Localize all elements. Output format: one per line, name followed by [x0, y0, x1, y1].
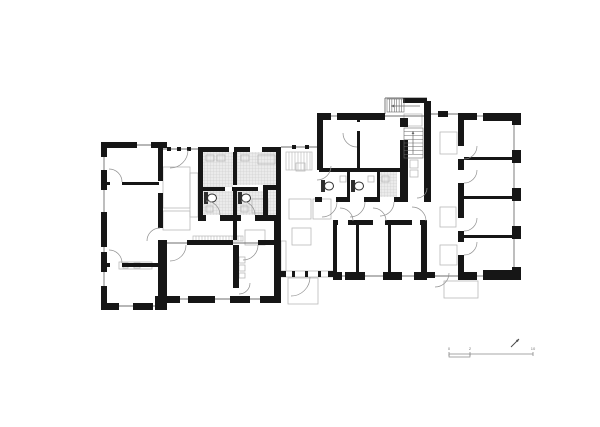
north-arrow-icon	[511, 339, 519, 347]
svg-text:2: 2	[469, 346, 472, 351]
scale-bar: 0210	[448, 346, 536, 357]
svg-text:0: 0	[448, 346, 451, 351]
floor-plan-page: 0210	[0, 0, 600, 427]
hatch-layer	[203, 152, 397, 215]
svg-text:10: 10	[531, 346, 536, 351]
floor-plan: 0210	[0, 0, 600, 427]
